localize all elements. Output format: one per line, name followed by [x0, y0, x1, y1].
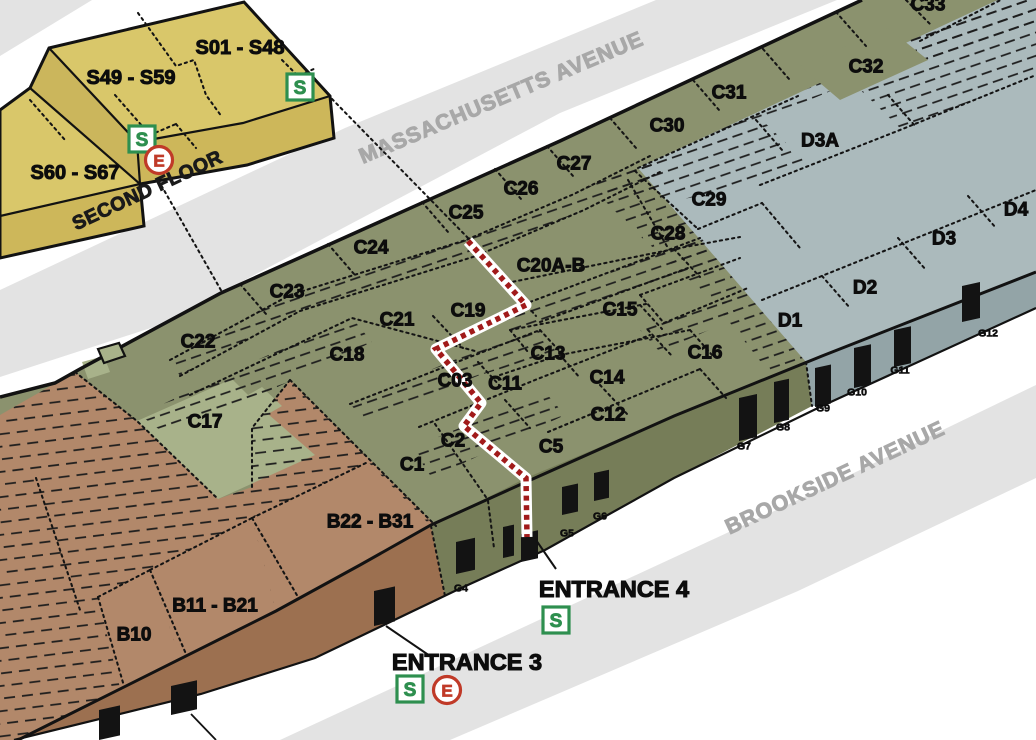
svg-text:C11: C11 [488, 374, 522, 395]
svg-text:D3: D3 [932, 229, 956, 250]
svg-text:G12: G12 [978, 328, 998, 340]
svg-text:C03: C03 [438, 371, 473, 392]
svg-text:G4: G4 [454, 583, 468, 595]
svg-text:G6: G6 [593, 511, 607, 523]
svg-text:B22 - B31: B22 - B31 [327, 512, 414, 533]
svg-text:C16: C16 [688, 343, 723, 364]
svg-text:G8: G8 [776, 422, 790, 434]
svg-text:C20A-B: C20A-B [517, 256, 586, 277]
svg-text:C1: C1 [400, 455, 425, 476]
svg-text:C32: C32 [849, 57, 884, 78]
svg-text:C33: C33 [911, 0, 946, 16]
svg-text:S: S [136, 130, 149, 151]
svg-text:B10: B10 [117, 625, 152, 646]
svg-text:G11: G11 [890, 365, 909, 377]
svg-text:C17: C17 [188, 412, 223, 433]
svg-text:E: E [441, 682, 452, 701]
svg-text:C30: C30 [650, 116, 685, 137]
svg-text:ENTRANCE 3: ENTRANCE 3 [392, 649, 542, 675]
svg-text:G10: G10 [847, 387, 867, 399]
svg-text:S01 - S48: S01 - S48 [196, 37, 285, 59]
svg-text:C22: C22 [181, 332, 216, 353]
svg-text:C27: C27 [557, 154, 592, 175]
svg-text:D3A: D3A [801, 131, 839, 152]
svg-text:G9: G9 [816, 403, 830, 415]
svg-text:C15: C15 [603, 300, 638, 321]
svg-text:C28: C28 [651, 224, 686, 245]
svg-text:C19: C19 [451, 301, 486, 322]
svg-text:C29: C29 [692, 190, 727, 211]
svg-text:C18: C18 [330, 345, 365, 366]
svg-text:D4: D4 [1004, 200, 1029, 221]
svg-text:C24: C24 [354, 238, 389, 259]
svg-text:C13: C13 [531, 344, 566, 365]
svg-text:C31: C31 [712, 83, 747, 104]
svg-text:D1: D1 [778, 311, 803, 332]
svg-text:C5: C5 [539, 437, 564, 458]
svg-text:S: S [550, 611, 563, 632]
svg-text:E: E [153, 152, 164, 171]
svg-text:C21: C21 [380, 310, 415, 331]
svg-text:C26: C26 [504, 179, 539, 200]
svg-text:C14: C14 [590, 368, 625, 389]
svg-text:C2: C2 [441, 431, 465, 452]
svg-text:C25: C25 [449, 203, 484, 224]
svg-text:S60 - S67: S60 - S67 [31, 162, 120, 184]
svg-text:D2: D2 [853, 278, 877, 299]
svg-text:C12: C12 [591, 405, 626, 426]
svg-text:S49 - S59: S49 - S59 [87, 67, 176, 89]
svg-text:S: S [294, 78, 307, 99]
svg-text:G7: G7 [737, 441, 751, 453]
svg-text:C23: C23 [270, 282, 305, 303]
svg-text:G5: G5 [560, 528, 574, 540]
svg-text:ENTRANCE 4: ENTRANCE 4 [539, 576, 689, 602]
svg-text:B11 - B21: B11 - B21 [172, 596, 258, 617]
svg-text:S: S [404, 680, 417, 701]
